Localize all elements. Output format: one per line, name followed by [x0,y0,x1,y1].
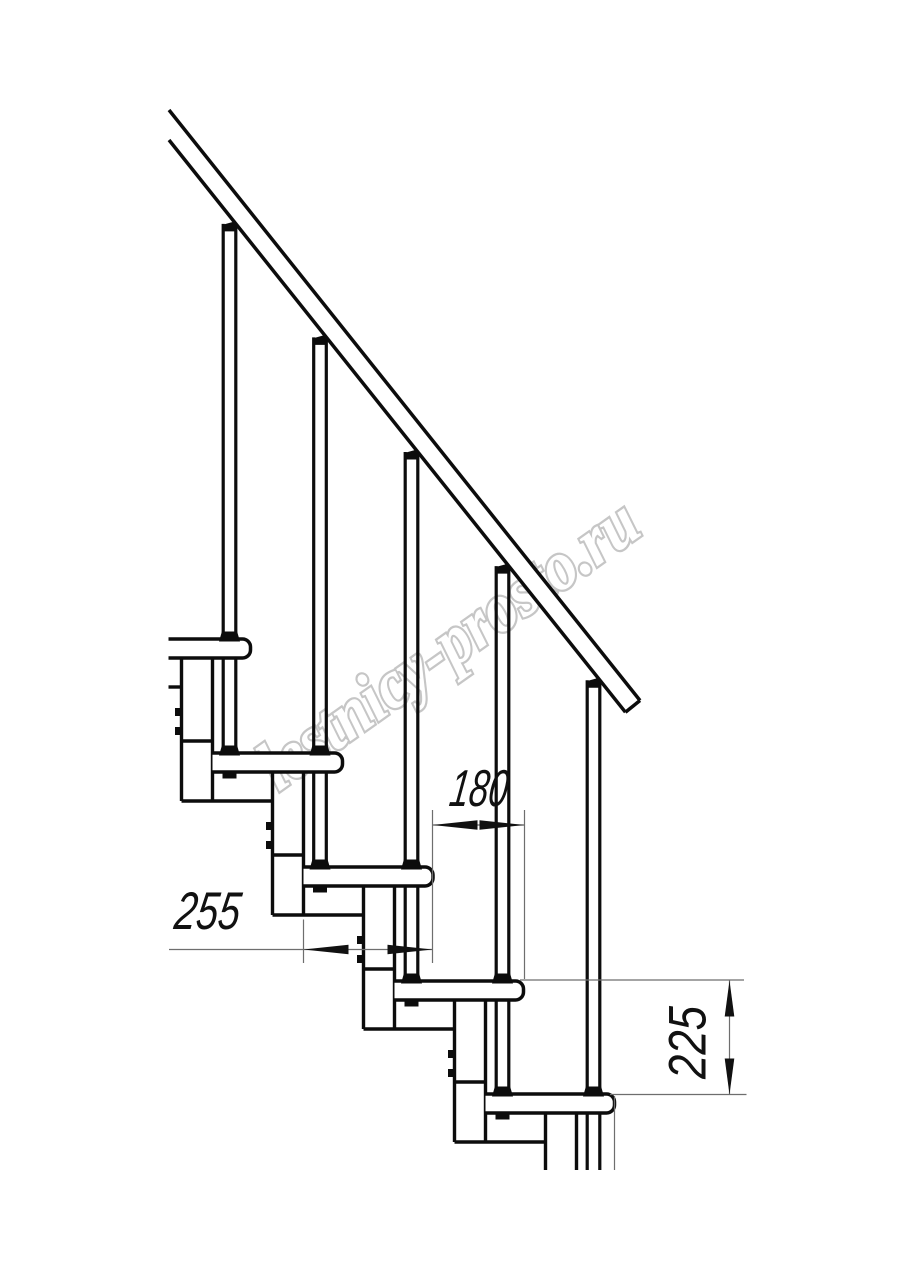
svg-text:225: 225 [659,1006,718,1080]
svg-text:180: 180 [446,760,512,818]
svg-text:255: 255 [171,882,245,941]
